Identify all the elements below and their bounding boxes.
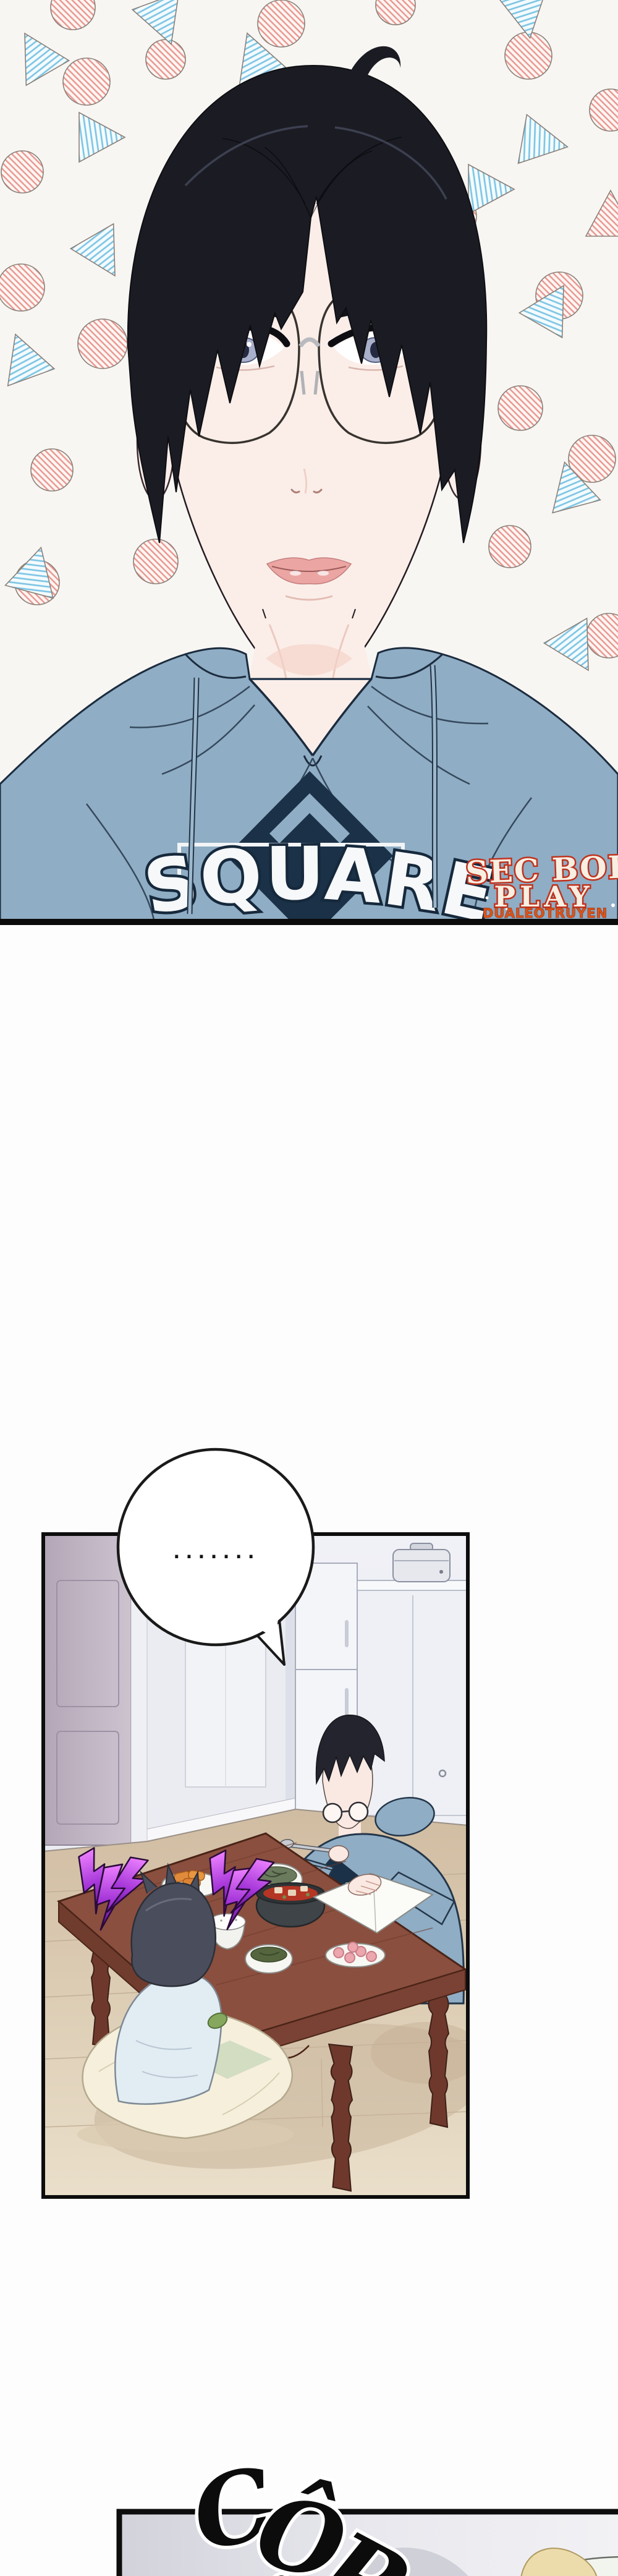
rice-cooker xyxy=(393,1543,450,1582)
watermark: SEC BOI PLAY DUALEOTRUYEN xyxy=(465,849,618,921)
stew-pot xyxy=(256,1883,324,1927)
kitchen-cabinet xyxy=(357,1580,468,1830)
comic-page: SQUARE SEC BOI PLAY DUALEOTRUYEN xyxy=(0,0,618,2576)
watermark-line3: DUALEOTRUYEN xyxy=(483,906,607,921)
panel-2: QUARE xyxy=(43,1449,496,2197)
man-right-hand xyxy=(329,1846,349,1862)
speech-bubble-text: ....... xyxy=(171,1542,258,1563)
greens-bowl xyxy=(245,1945,292,1973)
panel-1-border xyxy=(0,919,618,925)
panel-1: SQUARE SEC BOI PLAY DUALEOTRUYEN xyxy=(0,0,618,940)
